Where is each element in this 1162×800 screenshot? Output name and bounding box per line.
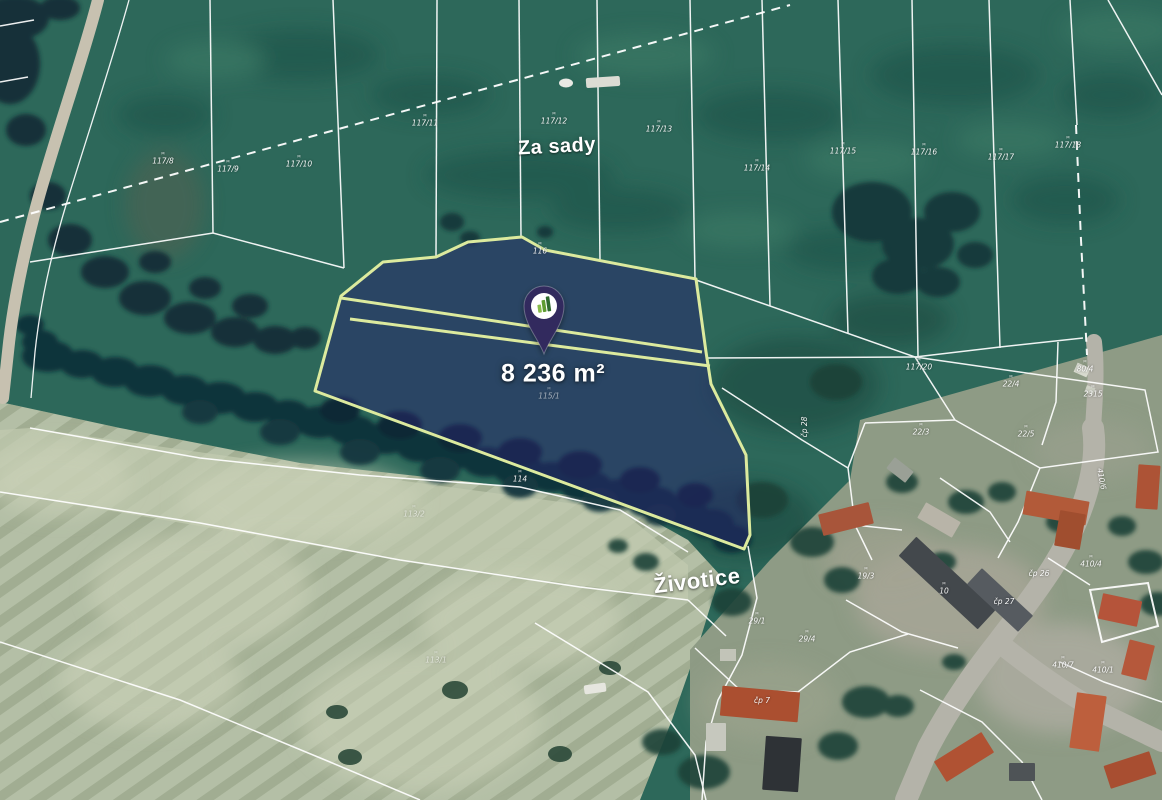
location-pin-icon <box>518 280 570 358</box>
satellite-map-view[interactable]: Za sadyŽivoticeᴍ117/8ᴍ117/9ᴍ117/10ᴍ117/1… <box>0 0 1162 800</box>
location-pin[interactable] <box>518 280 570 358</box>
satellite-imagery <box>0 0 1162 800</box>
area-label: 8 236 m² <box>501 360 605 389</box>
